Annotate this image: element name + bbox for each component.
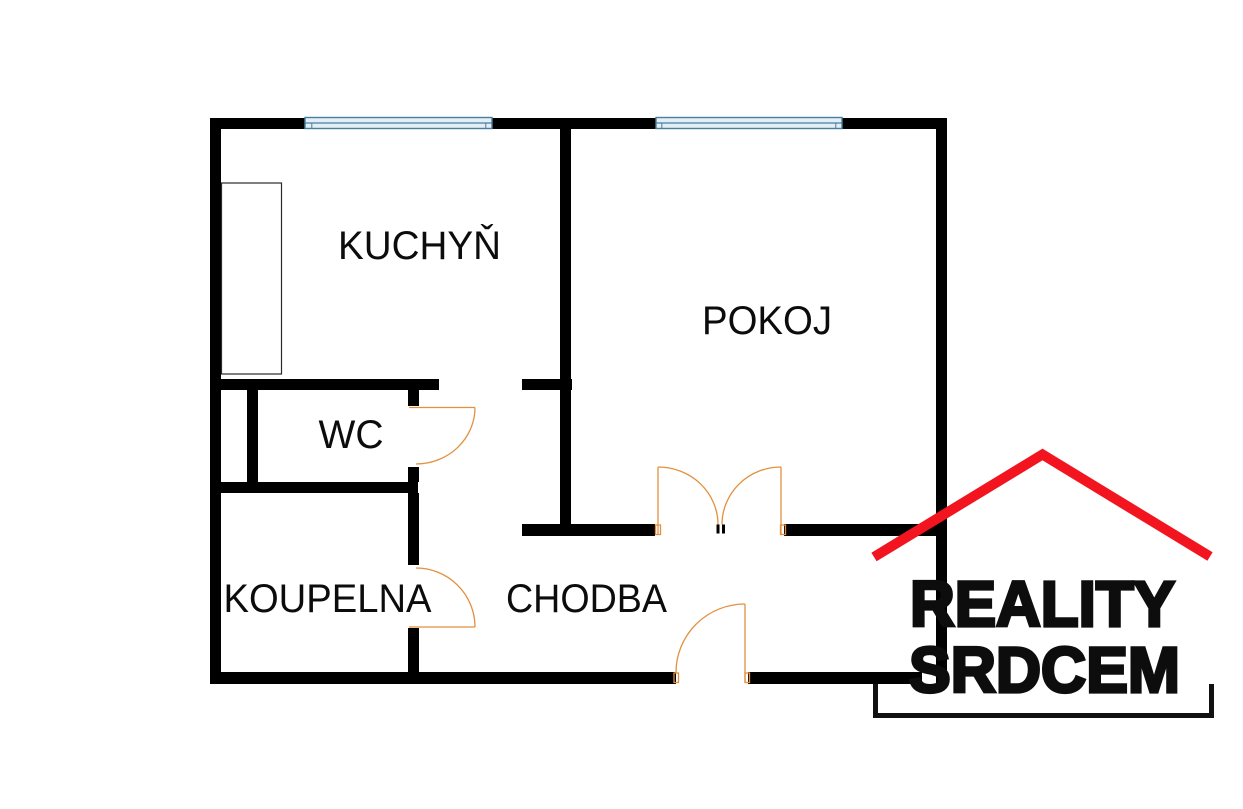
svg-text:REALITY: REALITY — [910, 568, 1175, 640]
svg-text:SRDCEM: SRDCEM — [909, 634, 1180, 706]
svg-text:CHODBA: CHODBA — [506, 577, 667, 621]
svg-text:KOUPELNA: KOUPELNA — [224, 577, 432, 621]
svg-text:WC: WC — [319, 413, 384, 457]
svg-text:POKOJ: POKOJ — [702, 299, 832, 343]
svg-text:KUCHYŇ: KUCHYŇ — [338, 223, 501, 268]
